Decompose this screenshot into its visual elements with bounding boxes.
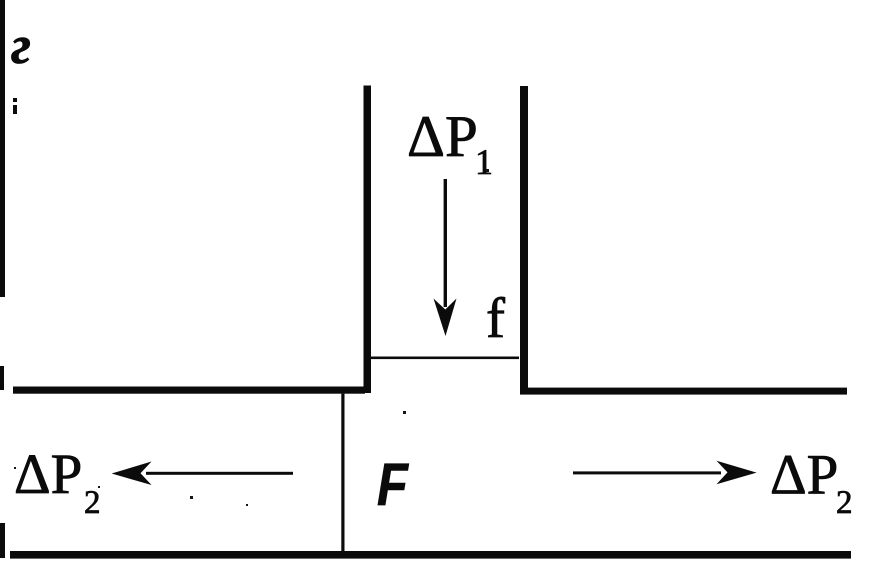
svg-text:ΔP: ΔP xyxy=(770,444,838,507)
svg-text:ΔP: ΔP xyxy=(407,103,478,169)
svg-text:1: 1 xyxy=(475,142,493,182)
svg-text:2: 2 xyxy=(836,485,853,521)
svg-text:F: F xyxy=(377,451,409,518)
svg-text:f: f xyxy=(486,287,505,350)
svg-text:г: г xyxy=(11,15,31,75)
svg-text:2: 2 xyxy=(84,485,101,521)
svg-text:ΔP: ΔP xyxy=(14,443,82,506)
